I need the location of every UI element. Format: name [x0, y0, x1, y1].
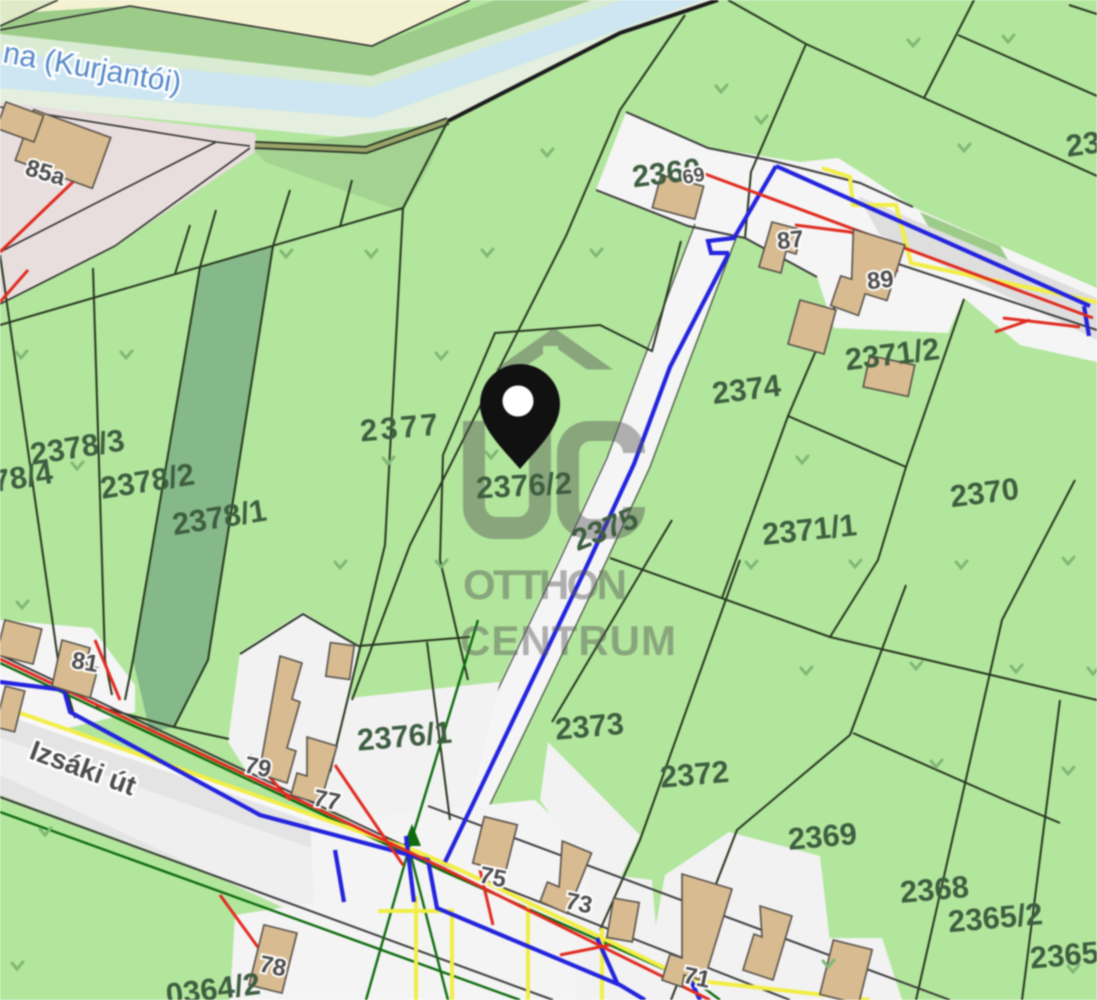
svg-text:71: 71 [681, 962, 713, 994]
svg-text:89: 89 [866, 266, 895, 296]
svg-text:2365: 2365 [1028, 935, 1097, 976]
svg-text:CENTRUM: CENTRUM [460, 617, 676, 664]
svg-text:78: 78 [257, 951, 289, 983]
svg-text:2369: 2369 [787, 816, 859, 857]
svg-text:77: 77 [311, 785, 343, 817]
svg-text:73: 73 [563, 888, 595, 920]
svg-text:87: 87 [776, 226, 805, 256]
svg-text:81: 81 [69, 647, 100, 678]
svg-text:2376/2: 2376/2 [475, 465, 573, 505]
svg-text:75: 75 [477, 862, 509, 894]
svg-text:79: 79 [242, 752, 274, 784]
svg-text:2372: 2372 [659, 754, 731, 795]
svg-text:OTTHON: OTTHON [463, 561, 627, 608]
svg-text:69: 69 [681, 164, 707, 190]
svg-text:2373: 2373 [554, 706, 626, 747]
svg-text:236: 236 [1064, 122, 1097, 164]
